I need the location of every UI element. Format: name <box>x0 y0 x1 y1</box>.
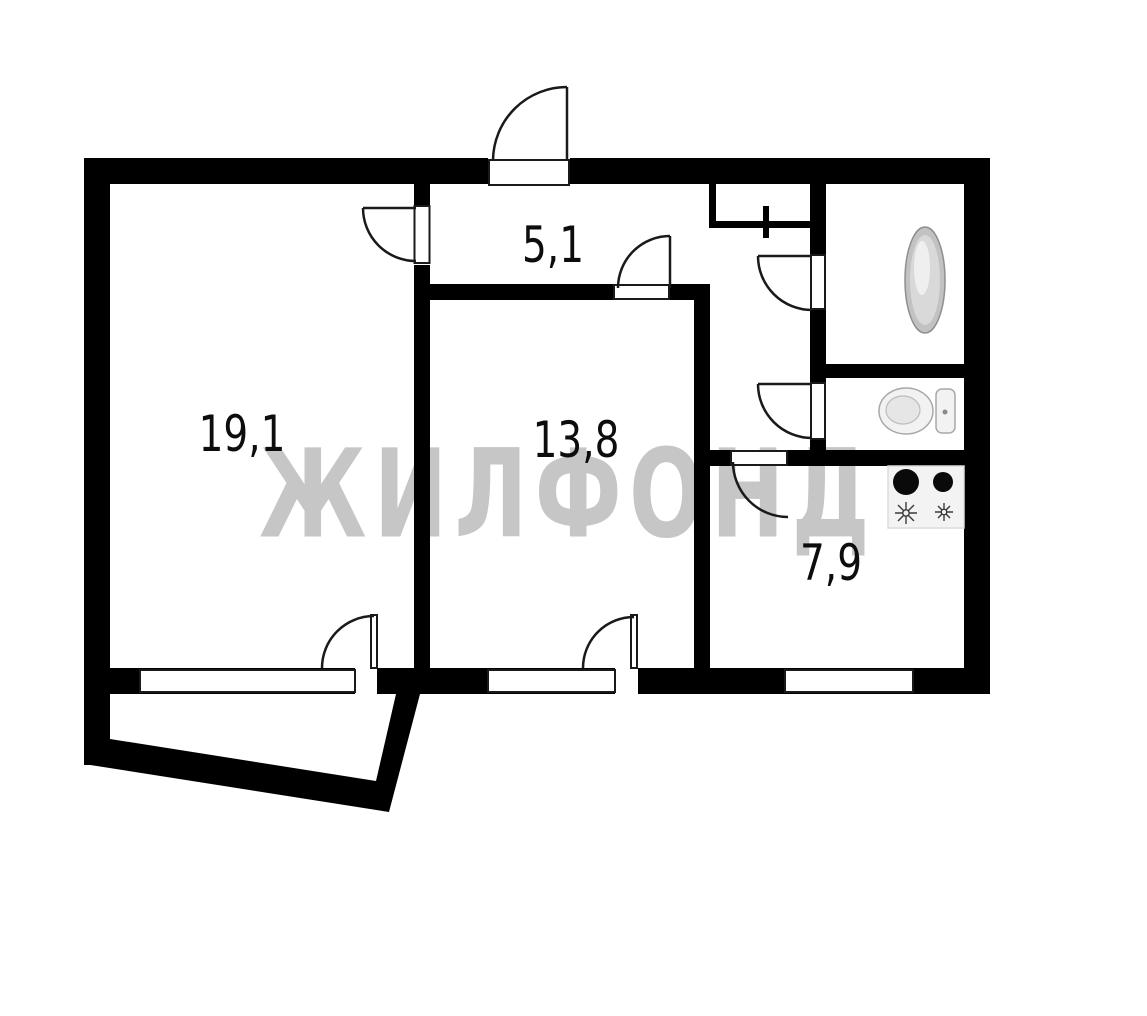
window-living <box>140 670 355 692</box>
stove-icon <box>888 466 964 528</box>
room-label-hallway: 5,1 <box>522 216 584 274</box>
window-bedroom <box>488 670 615 692</box>
window-kitchen <box>785 670 913 692</box>
door-leaf-balcony-bedroom <box>631 615 637 668</box>
floor-plan-drawing <box>0 0 1147 1016</box>
bathtub-icon <box>905 227 945 333</box>
room-label-kitchen: 7,9 <box>800 534 862 592</box>
door-leaf-bath <box>811 255 825 309</box>
hallway-closet <box>709 184 810 238</box>
room-label-bedroom: 13,8 <box>533 411 620 469</box>
door-bath <box>758 256 812 310</box>
vent-tick-icon <box>763 206 769 238</box>
wall-bedroom-right <box>694 284 710 668</box>
door-balcony-bedroom <box>583 617 634 668</box>
interior-walls <box>414 184 964 668</box>
door-leaf-kitchen <box>731 451 787 465</box>
wall-left <box>84 158 110 765</box>
entrance-sill <box>489 160 569 185</box>
door-leaf-toilet <box>811 383 825 439</box>
balcony <box>84 694 420 812</box>
wall-bath-toilet <box>826 364 964 378</box>
door-kitchen <box>733 462 788 517</box>
room-label-living: 19,1 <box>199 405 286 463</box>
toilet-icon <box>879 388 955 434</box>
door-balcony-living <box>322 616 374 668</box>
door-leaf-bedroom <box>614 285 669 299</box>
door-entrance <box>493 87 567 160</box>
door-living <box>363 208 416 261</box>
floor-plan-page: ЖИЛФОНД <box>0 0 1147 1016</box>
door-leaf-living <box>415 206 430 263</box>
door-bedroom <box>618 236 670 288</box>
wall-right <box>964 158 990 694</box>
door-toilet <box>758 384 812 438</box>
door-leaf-balcony-living <box>371 615 377 668</box>
